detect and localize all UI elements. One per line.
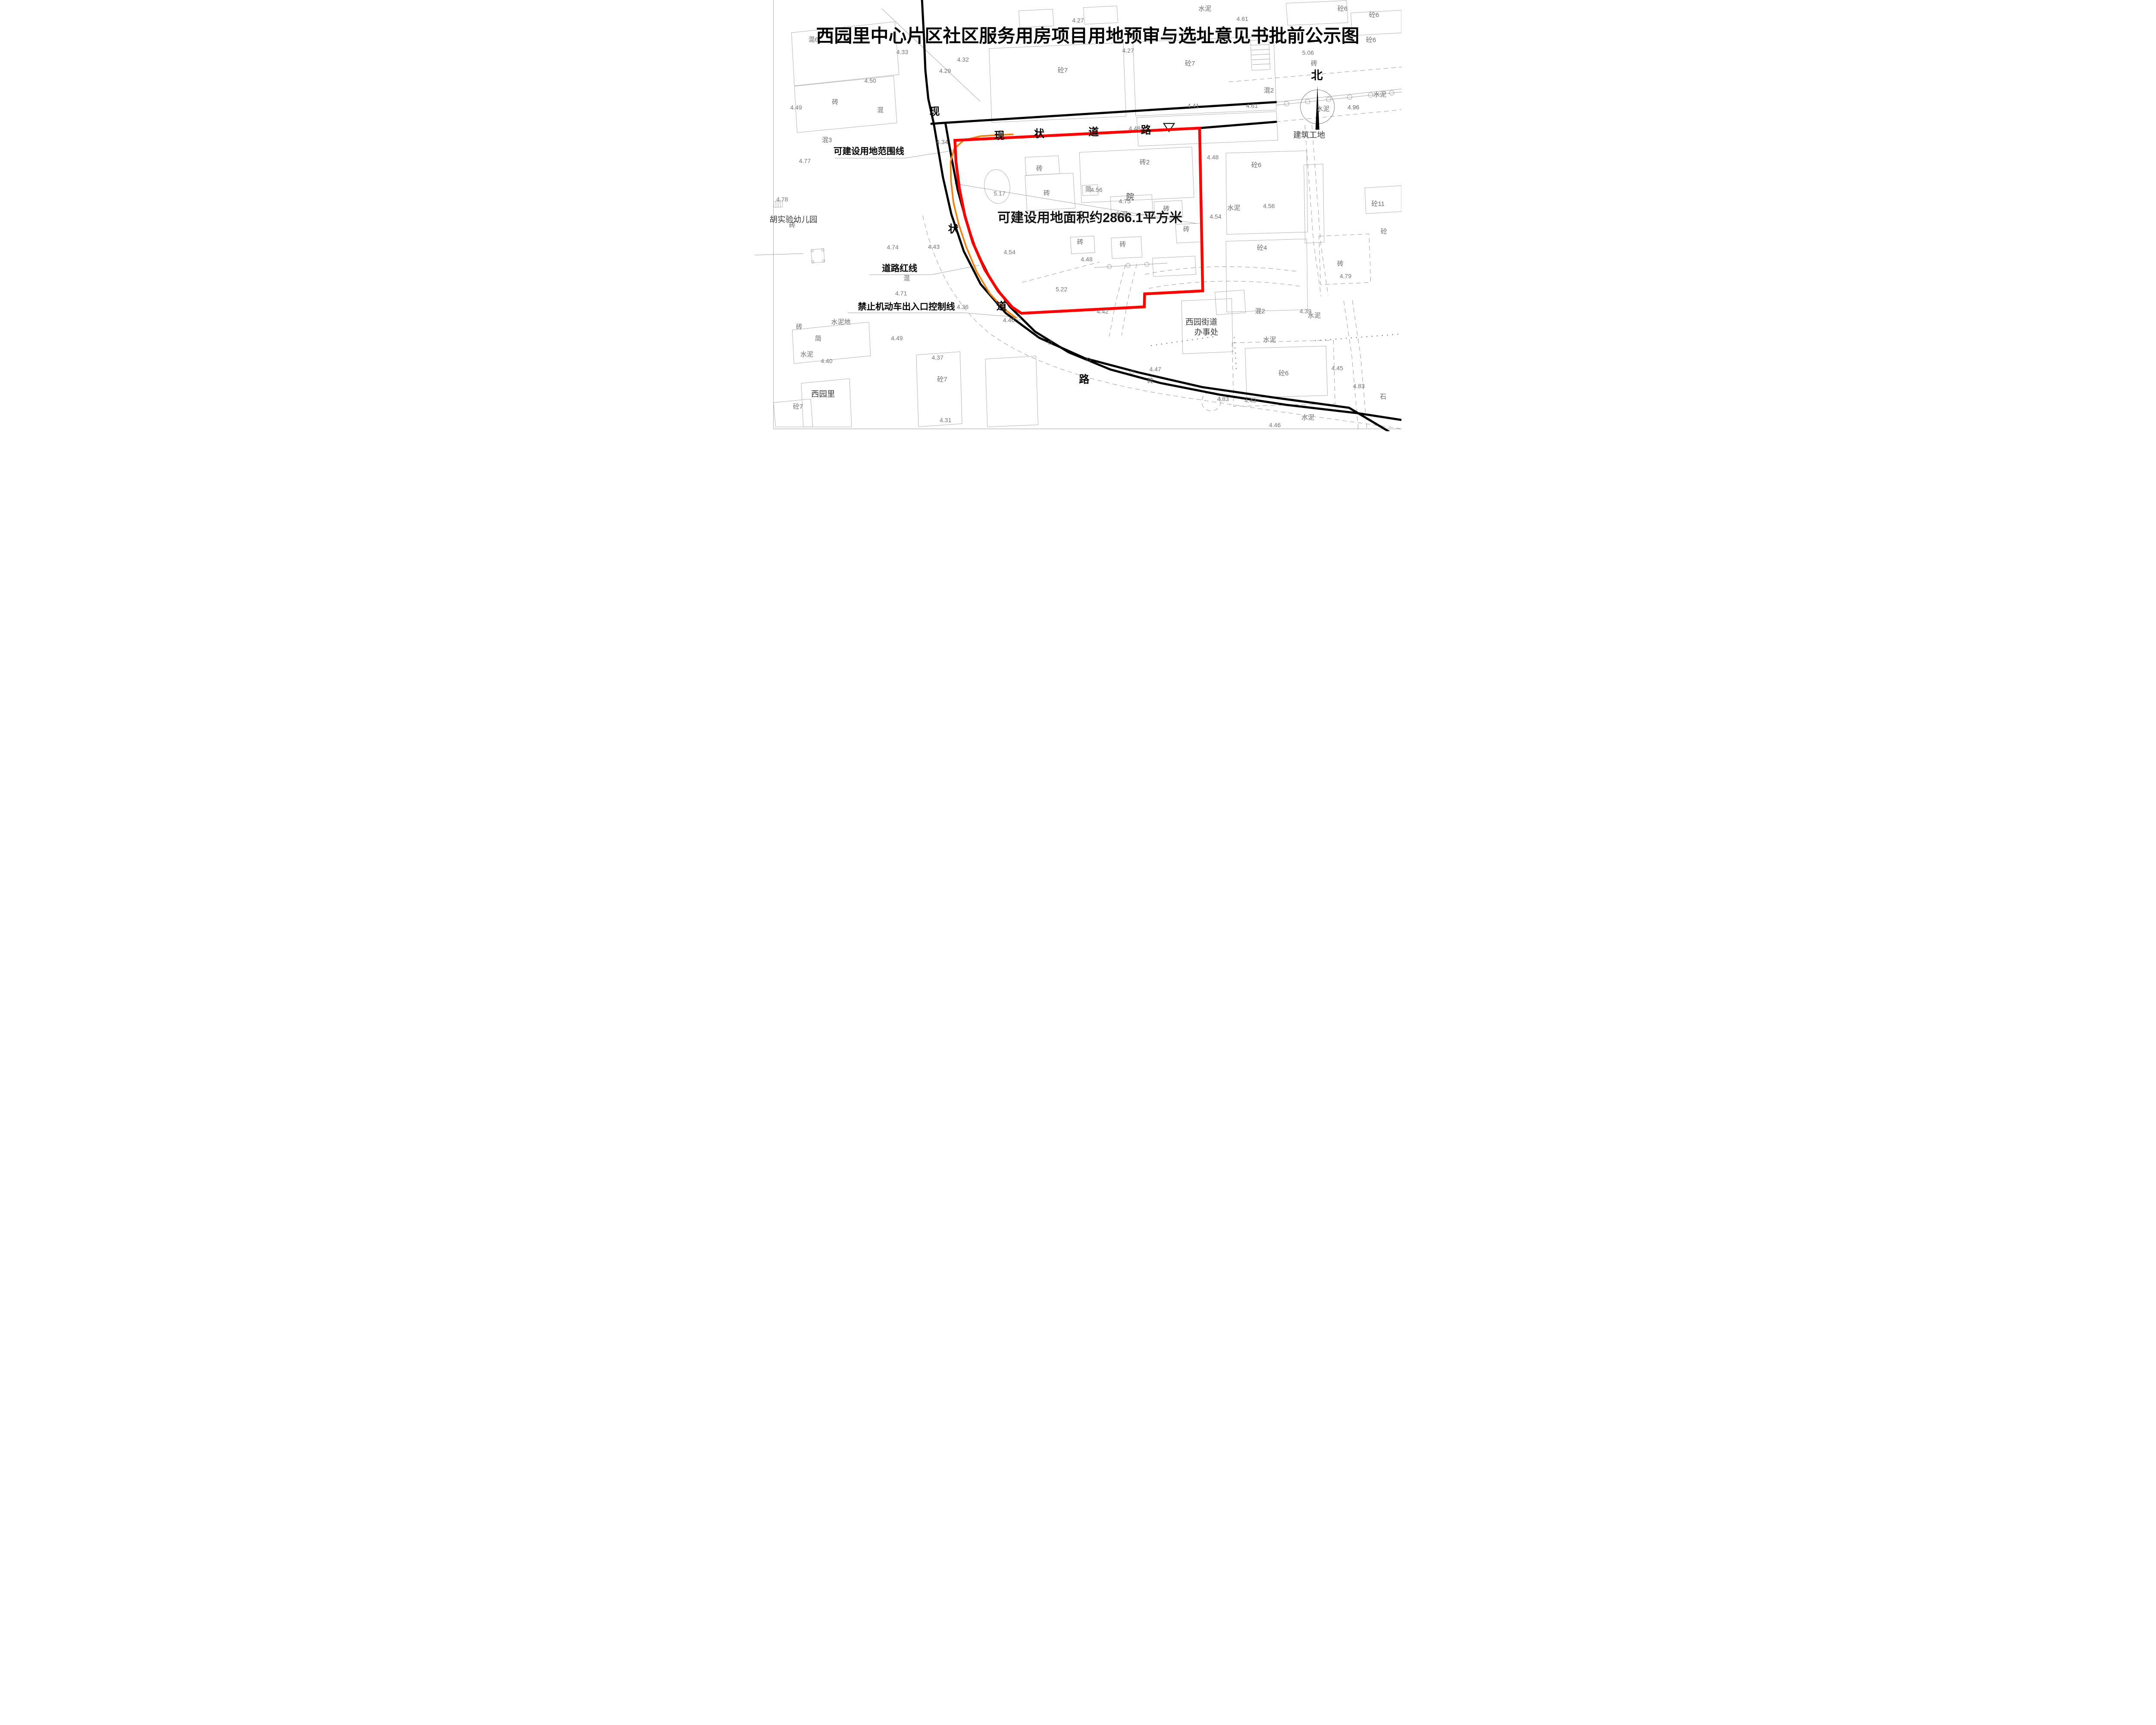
elevation-label: 4.83: [1217, 395, 1229, 402]
elevation-label: 4.33: [896, 49, 908, 56]
surface-label: 砼: [1381, 228, 1387, 235]
surface-label: 混2: [1264, 87, 1274, 94]
surface-label: 水泥: [800, 351, 813, 358]
road-name-char: 状: [1034, 128, 1045, 140]
surface-label: 水泥地: [831, 318, 850, 326]
elevation-label: 4.34: [936, 138, 948, 145]
elevation-label: 4.49: [790, 104, 802, 111]
surface-label: 水泥: [1373, 91, 1386, 98]
surface-label: 简: [815, 335, 821, 342]
elevation-label: 4.27: [1122, 47, 1134, 54]
elevation-label: 4.83: [1353, 383, 1365, 389]
elevation-label: 4.71: [895, 290, 907, 297]
elevation-label: 4.48: [1207, 154, 1219, 161]
elevation-label: 4.45: [1332, 365, 1343, 372]
surface-label: 砖: [1077, 238, 1084, 246]
elevation-label: 4.54: [1210, 213, 1221, 220]
elevation-label: 4.42: [1097, 308, 1108, 315]
elevation-label: 4.77: [799, 157, 811, 164]
place-label: 西园里: [811, 389, 835, 398]
surface-label: 砼6: [1369, 12, 1379, 19]
surface-label: 砼6: [1251, 162, 1261, 169]
page-title: 西园里中心片区社区服务用房项目用地预审与选址意见书批前公示图: [816, 26, 1359, 46]
surface-label: 砼7: [1058, 67, 1068, 74]
elevation-label: 4.48: [1129, 125, 1141, 132]
vehicle-access-control-line: [951, 135, 1016, 318]
dashed-lines: [923, 67, 1401, 429]
surface-label: 砼6: [1366, 37, 1376, 44]
surface-label: 砖: [789, 222, 796, 229]
road-name-char: 现: [930, 106, 940, 117]
elevation-label: 4.78: [776, 196, 788, 203]
elevation-label: 4.61: [1237, 15, 1248, 22]
legend-annotation-label: 禁止机动车出入口控制线: [858, 301, 955, 312]
surface-label: 砼7: [937, 376, 947, 383]
elevation-label: 4.43: [928, 243, 940, 250]
elevation-label: 4.36: [957, 303, 968, 310]
surface-label: 混: [877, 107, 884, 114]
road-name-char: 路: [1079, 373, 1090, 386]
elevation-label: 4.29: [939, 67, 951, 74]
surface-label: 砖: [832, 98, 838, 106]
surface-label: 水泥: [1227, 204, 1240, 212]
surface-label: 水泥: [1316, 106, 1329, 113]
surface-label: 砖: [1147, 377, 1153, 385]
road-name-char: 道: [1088, 126, 1099, 138]
surface-label: 砼11: [1371, 201, 1385, 208]
surface-label: 砖: [1183, 226, 1190, 233]
elevation-label: 4.50: [865, 77, 876, 84]
elevation-label: 4.75: [1119, 198, 1131, 204]
elevation-label: 4.56: [1263, 202, 1275, 209]
stairs-hatch: [774, 40, 1270, 207]
elevation-label: 4.48: [1081, 256, 1092, 263]
elevation-label: 4.27: [1072, 17, 1084, 24]
place-label: 建筑工地: [1293, 131, 1325, 140]
place-label: 西园街道: [1185, 317, 1217, 326]
surface-label: 砼7: [1185, 60, 1195, 67]
elevation-label: 4.74: [887, 244, 899, 251]
elevation-label: 4.79: [1340, 273, 1351, 279]
top-road-upper-edge: [931, 102, 1276, 124]
road-name-char: 状: [948, 223, 959, 235]
elevation-label: 4.54: [1004, 248, 1015, 255]
elevation-label: 4.46: [1269, 422, 1281, 429]
pond-outline: [982, 168, 1012, 205]
road-name-char: 路: [1141, 124, 1152, 136]
map-canvas: 北 西园里中心片区社区服务用房项目用地预审与选址意见书批前公示图 可建设用地面积…: [755, 0, 1401, 431]
elevation-label: 4.31: [940, 417, 951, 423]
surface-label: 砼6: [1338, 5, 1347, 13]
surface-label: 混6: [808, 36, 818, 43]
surface-label: 砖2: [1140, 159, 1150, 166]
elevation-label: 5.06: [1302, 49, 1314, 56]
surface-label: 砼7: [793, 403, 803, 411]
surface-label: 水泥: [1198, 5, 1211, 13]
elevation-label: 4.56: [1091, 186, 1102, 193]
top-road-lower-edge: [1200, 122, 1276, 129]
surface-label: 砖: [796, 323, 802, 331]
elevation-label: 5.22: [1056, 285, 1067, 292]
surface-label: 砖: [1119, 241, 1126, 248]
surface-label: 混: [903, 275, 910, 282]
road-name-char: 现: [994, 130, 1005, 142]
road-name-char: 道: [997, 300, 1007, 312]
surface-label: 石: [1380, 393, 1386, 401]
surface-label: 水泥: [1115, 211, 1128, 218]
legend-annotation-label: 道路红线: [882, 263, 917, 273]
surface-label: 水泥: [1301, 414, 1314, 421]
surface-label: 水泥: [1263, 336, 1276, 344]
surface-label: 砖: [1337, 260, 1344, 267]
place-name-labels: 建筑工地西园街道办事处西园里胡实验幼儿园院: [769, 131, 1325, 399]
legend-annotation-labels: 可建设用地范围线道路红线禁止机动车出入口控制线: [834, 146, 955, 312]
surface-label: 砼4: [1257, 245, 1267, 252]
place-label: 办事处: [1194, 327, 1219, 336]
elevation-label: 4.96: [1347, 103, 1359, 110]
curved-road-inner-edge: [946, 123, 1402, 420]
elevation-label: 4.39: [1300, 307, 1311, 314]
north-arrow: 北: [1300, 69, 1335, 130]
elevation-label: 4.49: [891, 335, 903, 342]
surface-label: 混2: [1255, 307, 1265, 315]
elevation-label: 4.43: [1244, 397, 1256, 404]
surface-label: 砖: [1036, 165, 1043, 172]
small-structure: [811, 249, 825, 263]
elevation-label: 5.17: [993, 190, 1005, 197]
elevation-label: 4.41: [1188, 102, 1199, 109]
buildable-area-note: 可建设用地面积约2866.1平方米: [997, 210, 1182, 225]
elevation-label: 4.37: [932, 354, 943, 361]
surface-label: 砖: [1044, 190, 1050, 197]
surface-label: 砖: [1163, 205, 1169, 213]
surface-label: 砖: [1311, 60, 1317, 67]
elevation-label: 4.61: [1246, 102, 1258, 109]
surface-label: 砼6: [1279, 370, 1288, 377]
plan-map-page: 北 西园里中心片区社区服务用房项目用地预审与选址意见书批前公示图 可建设用地面积…: [755, 0, 1401, 431]
elevation-label: 4.32: [957, 56, 969, 63]
elevation-label: 4.46: [1003, 317, 1015, 323]
elevation-label: 4.40: [821, 358, 832, 364]
north-label: 北: [1311, 69, 1323, 82]
elevation-label: 4.47: [1150, 366, 1161, 373]
legend-annotation-label: 可建设用地范围线: [834, 146, 904, 157]
surface-label: 混3: [822, 137, 832, 144]
